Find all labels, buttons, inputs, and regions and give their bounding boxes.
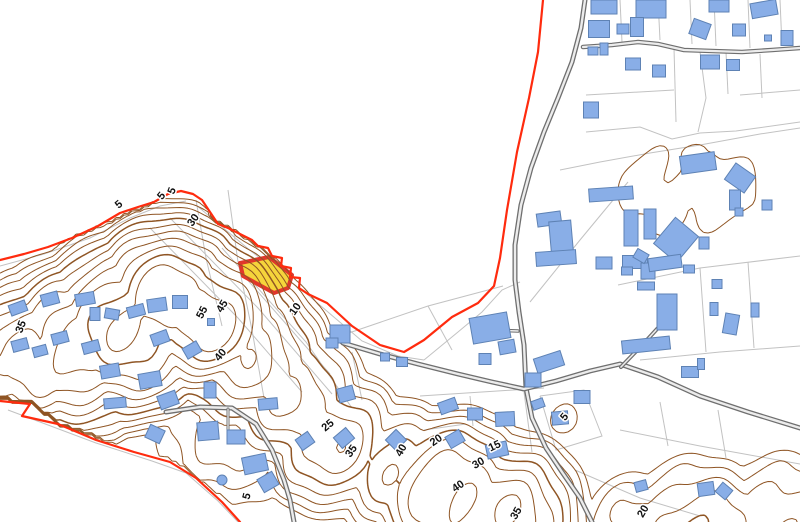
building xyxy=(445,429,465,448)
building xyxy=(712,280,722,289)
building xyxy=(596,257,612,269)
parcel-boundary-line xyxy=(228,190,264,398)
building xyxy=(636,0,666,18)
parcel-boundary-line xyxy=(540,390,602,450)
parcel-boundary-line xyxy=(726,52,728,94)
building xyxy=(40,291,60,307)
contour-label: 35 xyxy=(508,505,525,522)
building xyxy=(638,282,655,290)
building xyxy=(624,210,638,246)
building xyxy=(81,339,100,354)
building xyxy=(197,421,219,441)
building xyxy=(653,65,666,77)
parcel-boundary-line xyxy=(674,48,676,122)
building xyxy=(657,294,677,330)
parcel-boundary-line xyxy=(690,0,692,44)
building xyxy=(227,430,245,444)
building xyxy=(617,24,629,34)
red-boundary-line xyxy=(0,401,240,522)
building xyxy=(11,338,29,353)
building xyxy=(724,163,755,193)
parcel-boundary-line xyxy=(700,268,706,352)
building xyxy=(531,398,545,411)
building xyxy=(295,431,315,450)
contour-label: 30 xyxy=(470,455,487,472)
building xyxy=(621,336,670,354)
building-round xyxy=(217,475,227,485)
building xyxy=(699,237,709,249)
building xyxy=(257,471,279,492)
building xyxy=(381,353,390,361)
building xyxy=(8,300,28,316)
building xyxy=(684,265,695,273)
building xyxy=(679,152,716,175)
building xyxy=(182,341,202,359)
building xyxy=(147,297,168,313)
building xyxy=(104,308,120,320)
contour-layer xyxy=(0,144,800,522)
building xyxy=(697,481,715,496)
building xyxy=(574,391,590,404)
contour-label: 25 xyxy=(320,417,337,434)
contour-label: 35 xyxy=(13,319,29,335)
building xyxy=(584,102,599,118)
building xyxy=(765,35,772,41)
building xyxy=(479,354,491,365)
building xyxy=(51,331,69,346)
parcel-boundary-line xyxy=(660,402,668,446)
building xyxy=(781,31,793,46)
building xyxy=(701,55,720,69)
building xyxy=(138,371,162,390)
building xyxy=(468,408,483,420)
building xyxy=(549,220,574,252)
building xyxy=(173,296,188,309)
building xyxy=(735,208,743,216)
parcel-boundary-line xyxy=(740,90,800,95)
building xyxy=(648,254,682,271)
building xyxy=(336,385,355,403)
contour-label: 40 xyxy=(212,347,229,364)
map-canvas[interactable]: 55530554510354025355204015304035520 xyxy=(0,0,800,522)
building xyxy=(258,398,278,411)
building xyxy=(100,363,121,379)
parcel-boundary-line xyxy=(760,54,762,98)
building xyxy=(90,308,100,321)
contour-label: 20 xyxy=(428,432,445,449)
building xyxy=(589,21,610,38)
contour-line-5m xyxy=(0,144,800,522)
building xyxy=(326,338,338,348)
building xyxy=(536,250,577,267)
building xyxy=(495,412,515,427)
building xyxy=(730,190,741,210)
building xyxy=(709,0,729,12)
building xyxy=(437,397,458,414)
building xyxy=(104,397,127,409)
contour-label: 5 xyxy=(113,198,125,211)
building xyxy=(644,209,656,239)
parcel-boundary-line xyxy=(718,410,726,458)
building xyxy=(600,43,608,55)
building xyxy=(715,482,733,500)
parcel-boundary-line xyxy=(748,0,750,48)
contour-label: 20 xyxy=(635,503,652,520)
building xyxy=(622,267,633,275)
building xyxy=(32,344,48,357)
building xyxy=(751,303,759,317)
building xyxy=(126,303,145,318)
building xyxy=(588,47,598,55)
contour-label: 45 xyxy=(214,298,231,315)
building xyxy=(208,319,215,326)
contour-label: 5 xyxy=(241,492,254,501)
building xyxy=(710,303,718,316)
building xyxy=(157,390,180,410)
building xyxy=(682,367,699,378)
parcel-boundary-line xyxy=(620,430,800,464)
building xyxy=(469,312,511,344)
building xyxy=(589,186,634,202)
parcel-boundary-line xyxy=(586,122,800,139)
building xyxy=(75,291,96,306)
road-fill xyxy=(343,343,800,428)
map-viewport[interactable]: 55530554510354025355204015304035520 xyxy=(0,0,800,522)
building xyxy=(145,424,165,443)
building xyxy=(591,0,617,14)
building xyxy=(631,18,644,37)
building xyxy=(533,351,564,374)
building xyxy=(634,480,648,493)
building xyxy=(241,453,268,475)
building xyxy=(689,18,711,39)
building xyxy=(498,339,516,355)
road-casing xyxy=(343,343,800,428)
parcel-boundary-line xyxy=(620,0,622,42)
building xyxy=(204,382,216,398)
building xyxy=(762,200,772,210)
building xyxy=(722,313,739,335)
parcel-boundary-line xyxy=(586,90,674,95)
contour-label: 40 xyxy=(450,478,467,495)
building xyxy=(397,358,408,367)
building xyxy=(525,373,541,387)
building xyxy=(733,24,746,36)
building xyxy=(698,359,705,370)
building xyxy=(750,0,778,19)
building xyxy=(727,60,740,71)
building xyxy=(626,58,641,70)
building xyxy=(150,329,170,346)
